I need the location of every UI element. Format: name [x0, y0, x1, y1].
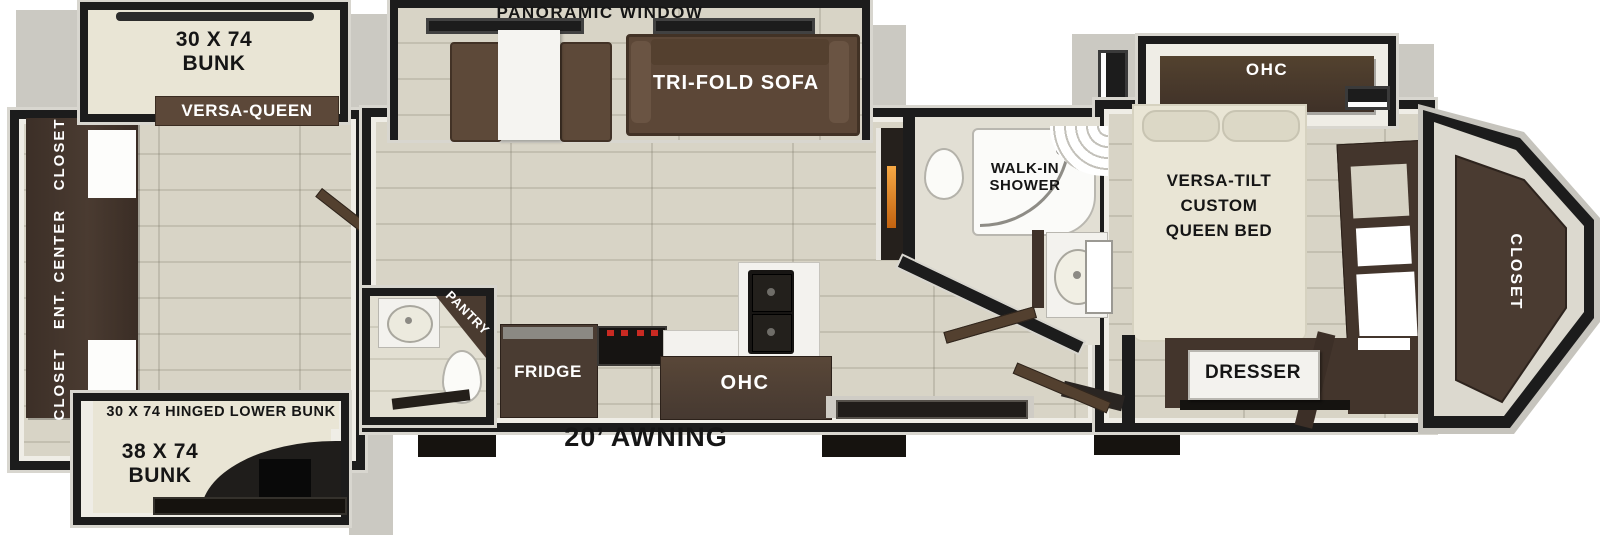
fridge-label: FRIDGE — [500, 362, 596, 382]
bunk-headboard — [116, 12, 314, 21]
front-closet-label: CLOSET — [1504, 222, 1524, 322]
fridge-top — [503, 327, 593, 339]
dresser-label: DRESSER — [1188, 362, 1318, 384]
entry-step — [822, 430, 906, 457]
versa-queen-label: VERSA-QUEEN — [155, 96, 339, 126]
bath-window — [1085, 240, 1113, 314]
walk-in-shower-label: WALK-IN SHOWER — [963, 160, 1087, 195]
entry-door-mat — [836, 400, 1028, 419]
stove-knob — [607, 330, 614, 336]
front-cap — [1398, 76, 1600, 448]
dinette-bench — [450, 42, 502, 142]
entry-step — [1094, 428, 1180, 455]
half-bath-door — [392, 389, 471, 409]
bedroom-right-window — [1345, 86, 1390, 110]
pillow — [1142, 110, 1220, 142]
bath-divider — [1032, 230, 1044, 308]
sink-basin — [387, 305, 433, 343]
sink-drain — [767, 328, 775, 336]
exterior-shadow — [868, 25, 906, 113]
dresser-base — [1180, 400, 1350, 410]
stove-knob — [621, 330, 628, 336]
bathroom-left-wall — [903, 117, 915, 265]
dinette-table — [498, 30, 560, 140]
hinged-lower-bunk-label: 30 X 74 HINGED LOWER BUNK — [95, 404, 347, 421]
sink-drain — [767, 288, 775, 296]
fireplace-flame — [887, 166, 896, 228]
rear-wall-label: CLOSET ENT. CENTER CLOSET — [51, 109, 73, 429]
queen-bed-label: VERSA-TILT CUSTOM QUEEN BED — [1130, 168, 1308, 243]
tv-opening — [88, 130, 136, 198]
exterior-shadow — [16, 10, 82, 112]
sink-faucet — [405, 317, 412, 324]
stove — [597, 326, 667, 366]
bedroom-left-window — [1098, 50, 1128, 106]
bedroom-step-wall — [1122, 335, 1135, 427]
entry-step — [418, 430, 496, 457]
exterior-shadow — [346, 14, 392, 112]
dinette-bench — [560, 42, 612, 142]
sofa-back — [651, 39, 829, 65]
lower-bunk-label: 38 X 74 BUNK — [100, 440, 220, 488]
bedroom-ohc-label: OHC — [1160, 60, 1374, 80]
top-bunk-label: 30 X 74 BUNK — [124, 28, 304, 76]
stove-knob — [637, 330, 644, 336]
pillow — [1222, 110, 1300, 142]
bath-sink-counter — [378, 298, 440, 348]
vanity-drain — [1073, 271, 1081, 279]
bathroom-toilet — [924, 148, 964, 200]
awning-label: 20’ AWNING — [496, 422, 796, 453]
tri-fold-sofa-label: TRI-FOLD SOFA — [622, 72, 850, 95]
rv-floorplan: CLOSET ENT. CENTER CLOSET 30 X 74 BUNK V… — [0, 0, 1600, 545]
bunk-step-strip — [153, 497, 347, 515]
stove-knob — [651, 330, 658, 336]
kitchen-sink — [748, 270, 794, 354]
panoramic-window-label: PANORAMIC WINDOW — [430, 3, 770, 23]
kitchen-ohc-label: OHC — [660, 372, 830, 395]
